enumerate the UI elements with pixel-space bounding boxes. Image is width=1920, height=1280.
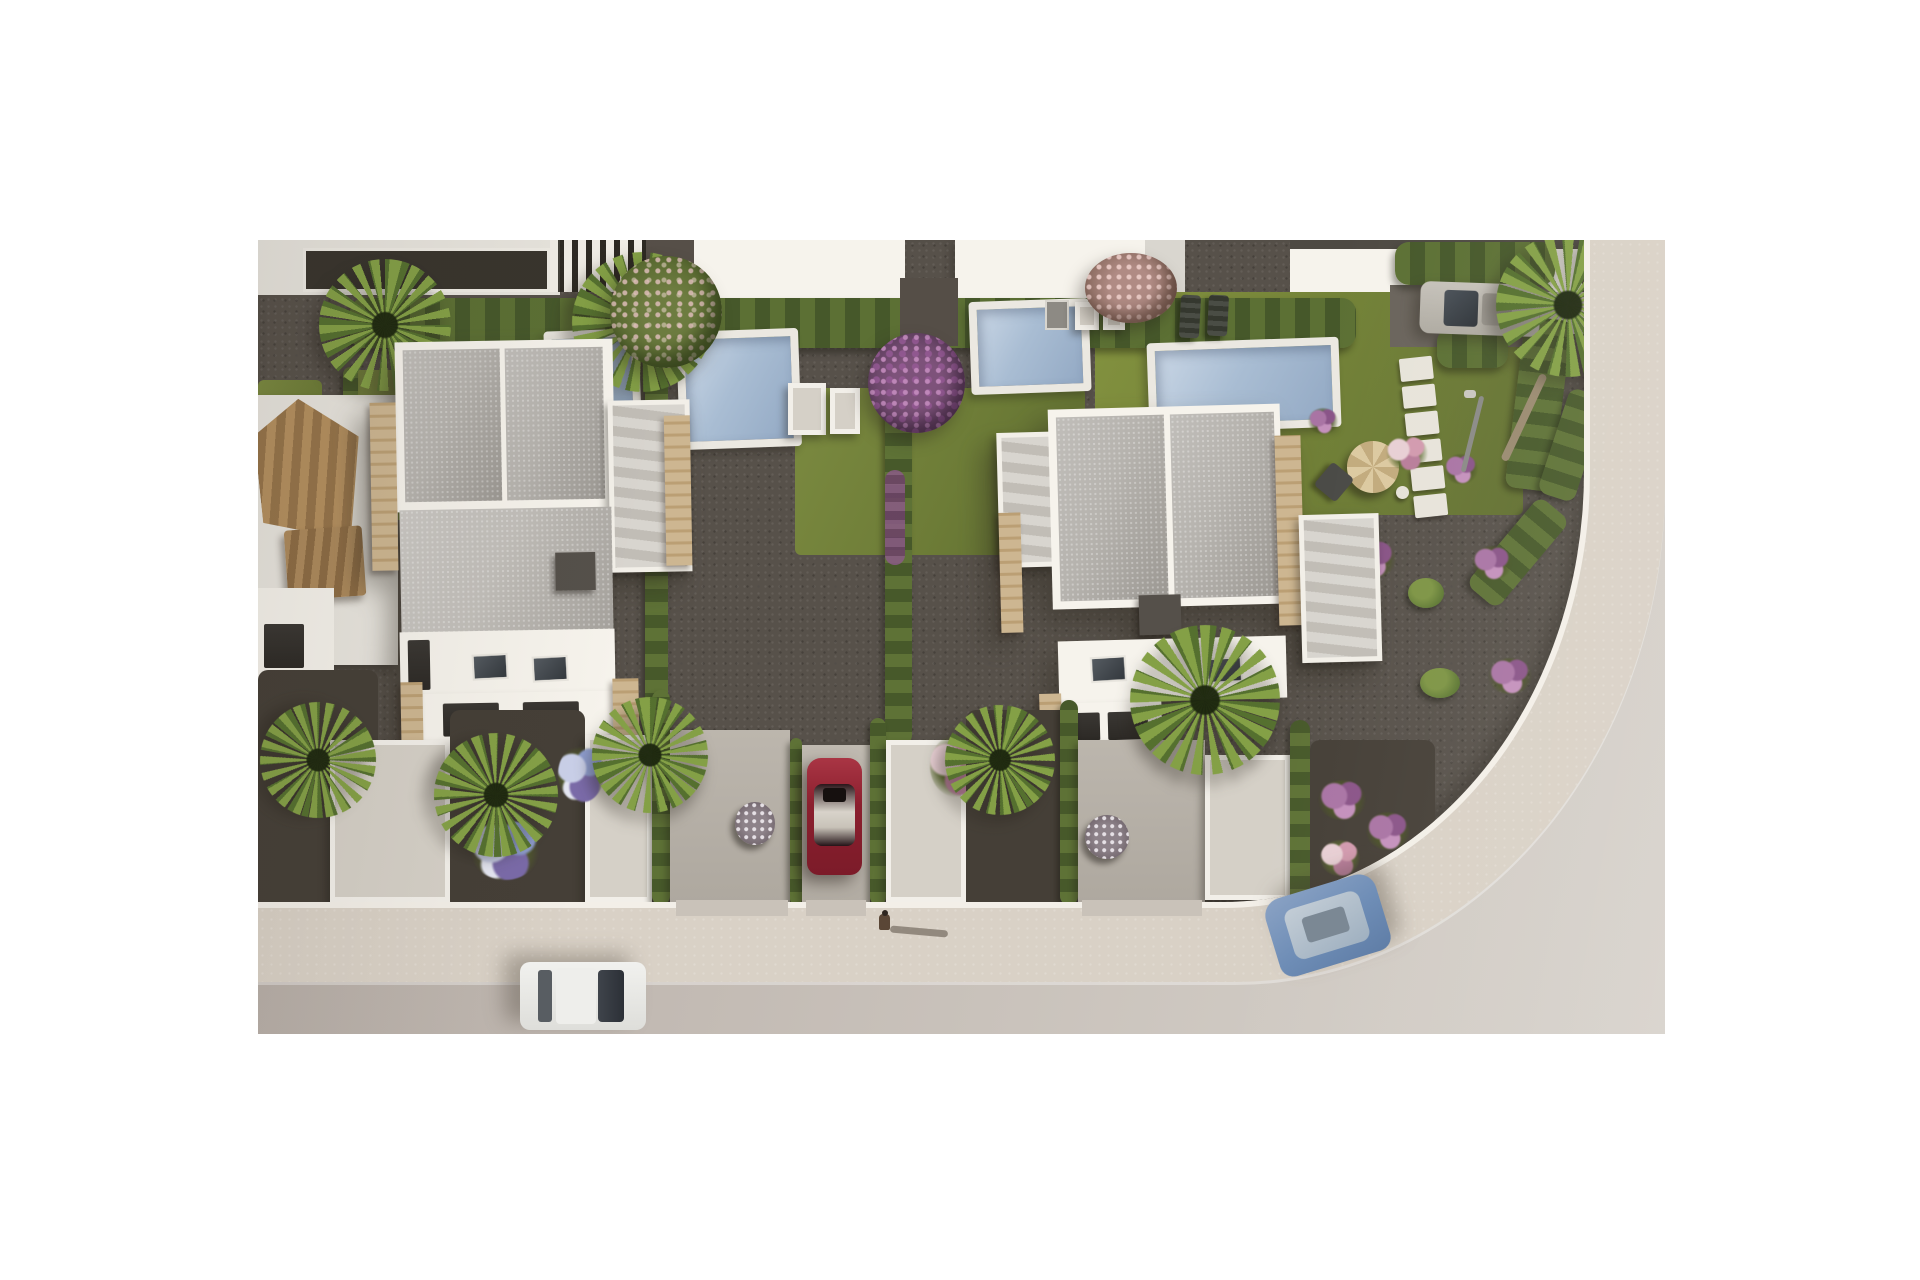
villa-2-roof-left: [1056, 415, 1169, 602]
white-car-rear-glass: [538, 970, 552, 1022]
villa-1-roof-right: [505, 347, 606, 501]
villa-2-terrace-right: [1298, 513, 1382, 663]
development-grounds: [258, 240, 1590, 908]
flower-cluster: [1386, 436, 1428, 470]
driveway-hedge: [1060, 700, 1078, 905]
villa-1-roof-left: [403, 349, 503, 503]
villa-2-roof-right: [1170, 412, 1279, 599]
front-patio-4: [1205, 755, 1290, 900]
driveway-hedge: [1290, 720, 1310, 902]
left-house-garage-door: [264, 624, 304, 668]
street-lamp-head: [1464, 390, 1476, 398]
pool-deck-pad: [830, 388, 860, 434]
page: Aerial 3D rendering of a modern Mediterr…: [0, 0, 1920, 1280]
top-building-2: [690, 240, 905, 302]
hedge-strip-center-right: [885, 400, 912, 745]
villa-1: [366, 335, 703, 753]
driveway-hedge: [790, 738, 802, 905]
sun-lounger: [1207, 295, 1229, 337]
villa-1-stone-pillar-left: [370, 402, 399, 570]
purple-bougainvillea-tree: [868, 333, 965, 433]
white-car: [520, 962, 646, 1030]
ball-shrub: [1085, 815, 1129, 859]
villa-1-skylight: [471, 653, 508, 681]
pink-tree: [1085, 253, 1177, 323]
villa-2-chimney: [1139, 594, 1182, 635]
utility-box: [1045, 300, 1069, 330]
stepping-stone: [1402, 383, 1437, 409]
villa-1-stone-wall: [400, 682, 423, 742]
ball-shrub: [735, 802, 775, 845]
villa-2-skylight: [1090, 655, 1128, 683]
garden-table: [1396, 486, 1409, 499]
pool-3: [968, 298, 1091, 395]
driveway-curb-cut: [676, 900, 788, 916]
villa-1-stone-pillar-right: [664, 415, 693, 565]
stepping-stone: [1413, 492, 1448, 518]
stepping-stone: [1410, 465, 1445, 491]
flower-cluster: [1366, 812, 1410, 850]
driveway-hedge: [870, 718, 886, 905]
villa-2-stone-pillar-left: [998, 512, 1023, 633]
green-bush: [1420, 668, 1460, 698]
red-car-sunroof: [823, 788, 846, 802]
flower-cluster: [1472, 546, 1512, 580]
stepping-stone: [1404, 410, 1439, 436]
white-car-roof: [556, 968, 596, 1024]
flower-cluster: [1488, 658, 1532, 694]
sun-lounger: [1179, 295, 1201, 339]
flower-cluster: [1320, 840, 1360, 876]
pool-deck-pad: [788, 383, 826, 435]
aerial-render: Aerial 3D rendering of a modern Mediterr…: [258, 240, 1665, 1034]
villa-1-chimney: [555, 552, 596, 591]
villa-1-skylight: [532, 655, 569, 683]
white-car-windshield: [598, 970, 624, 1022]
pedestrian-head: [882, 910, 888, 916]
driveway-curb-cut: [1082, 900, 1202, 916]
green-bush: [1408, 578, 1444, 608]
stepping-stone: [1399, 356, 1434, 382]
driveway-curb-cut: [806, 900, 866, 916]
bougainvillea-hedge: [885, 470, 905, 565]
pedestrian: [879, 914, 890, 930]
silver-car-windshield: [1443, 290, 1478, 327]
flower-cluster: [1318, 780, 1366, 820]
red-car: [807, 758, 862, 875]
